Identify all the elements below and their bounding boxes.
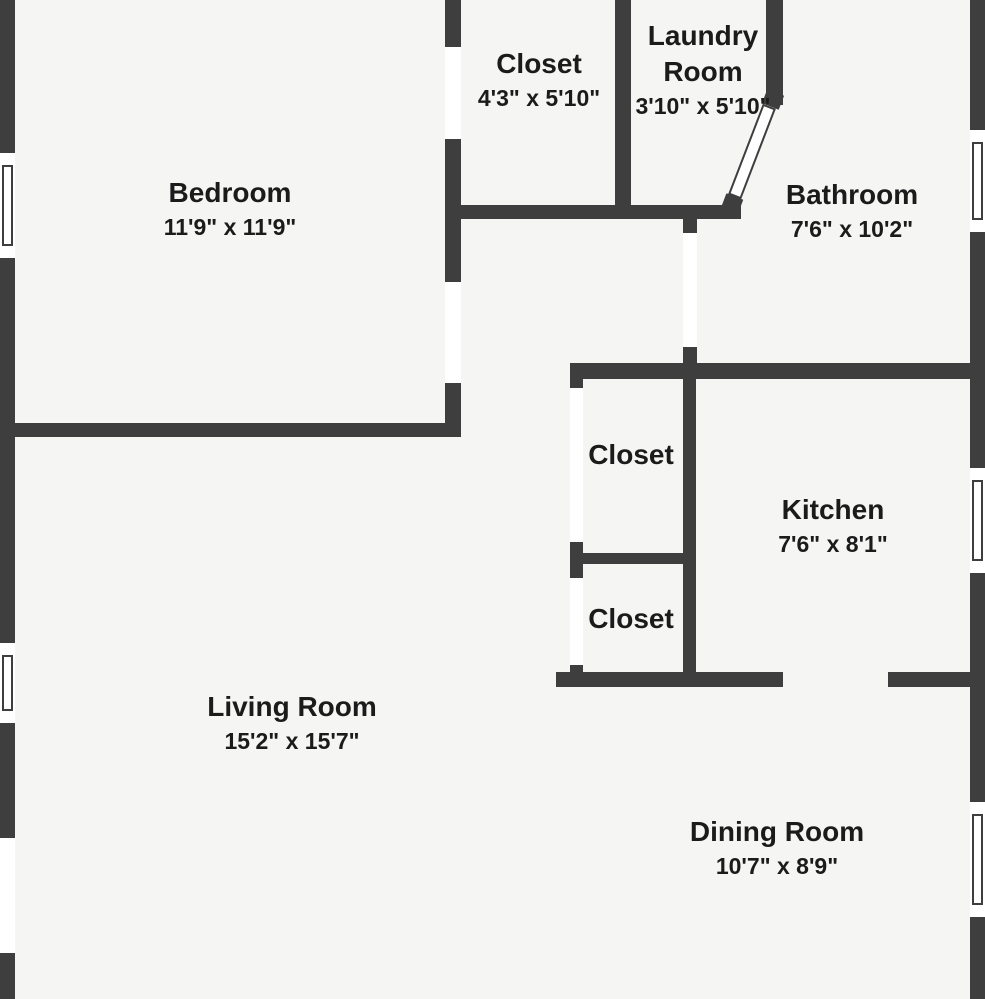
room-dimensions: 4'3" x 5'10"	[478, 82, 600, 114]
window-pane	[972, 814, 983, 905]
room-name: Laundry Room	[633, 18, 773, 90]
wall-right-outer-bottom	[970, 917, 985, 999]
wall-closet-laundry-divider	[615, 0, 631, 219]
wall-kitchen-bottom-right	[888, 672, 970, 687]
window-pane	[972, 480, 983, 561]
wall-left-outer-middle	[0, 258, 15, 643]
floor-plan: Bedroom 11'9" x 11'9" Closet 4'3" x 5'10…	[0, 0, 985, 999]
room-name: Closet	[588, 601, 674, 637]
kitchen-window	[970, 468, 985, 573]
living-room-label: Living Room 15'2" x 15'7"	[207, 689, 377, 757]
room-dimensions: 7'6" x 10'2"	[786, 213, 918, 245]
room-dimensions: 15'2" x 15'7"	[207, 725, 377, 757]
wall-right-outer-lower-mid	[970, 573, 985, 802]
closet2-door-opening	[570, 578, 583, 665]
closet1-door-opening	[570, 388, 583, 542]
wall-closets-left-top	[570, 363, 583, 388]
wall-kitchen-left	[683, 363, 696, 687]
dining-room-label: Dining Room 10'7" x 8'9"	[690, 814, 864, 882]
kitchen-label: Kitchen 7'6" x 8'1"	[778, 492, 888, 560]
wall-kitchen-bottom-left	[556, 672, 783, 687]
entry-door-opening	[0, 838, 15, 953]
room-dimensions: 3'10" x 5'10"	[633, 90, 773, 122]
room-name: Bathroom	[786, 177, 918, 213]
wall-left-outer-top	[0, 0, 15, 153]
bathroom-window	[970, 130, 985, 232]
room-name: Dining Room	[690, 814, 864, 850]
window-pane	[2, 165, 13, 246]
bathroom-door-opening	[683, 233, 697, 347]
wall-left-outer-lower	[0, 723, 15, 838]
closet-top-label: Closet 4'3" x 5'10"	[478, 46, 600, 114]
closet-door-opening	[445, 47, 461, 139]
wall-closet-laundry-bottom	[445, 205, 741, 219]
wall-right-outer-top	[970, 0, 985, 130]
living-room-window	[0, 643, 15, 723]
window-pane	[2, 655, 13, 711]
room-dimensions: 7'6" x 8'1"	[778, 528, 888, 560]
laundry-room-label: Laundry Room 3'10" x 5'10"	[633, 18, 773, 122]
closet-middle1-label: Closet	[588, 437, 674, 473]
room-name: Closet	[478, 46, 600, 82]
wall-bedroom-right-top	[445, 0, 461, 47]
wall-bedroom-bottom	[0, 423, 461, 437]
closet-middle2-label: Closet	[588, 601, 674, 637]
room-name: Kitchen	[778, 492, 888, 528]
wall-right-outer-upper-mid	[970, 232, 985, 468]
window-pane	[972, 142, 983, 220]
wall-bathroom-bottom	[570, 363, 970, 379]
dining-room-window	[970, 802, 985, 917]
room-name: Living Room	[207, 689, 377, 725]
room-dimensions: 11'9" x 11'9"	[164, 211, 297, 243]
room-name: Closet	[588, 437, 674, 473]
bathroom-label: Bathroom 7'6" x 10'2"	[786, 177, 918, 245]
bedroom-window	[0, 153, 15, 258]
bedroom-label: Bedroom 11'9" x 11'9"	[164, 175, 297, 243]
room-dimensions: 10'7" x 8'9"	[690, 850, 864, 882]
wall-bathroom-left-top	[683, 219, 697, 233]
wall-closets-divider	[570, 553, 696, 564]
wall-left-outer-bottom	[0, 953, 15, 999]
room-name: Bedroom	[164, 175, 297, 211]
bedroom-door-opening	[445, 282, 461, 383]
